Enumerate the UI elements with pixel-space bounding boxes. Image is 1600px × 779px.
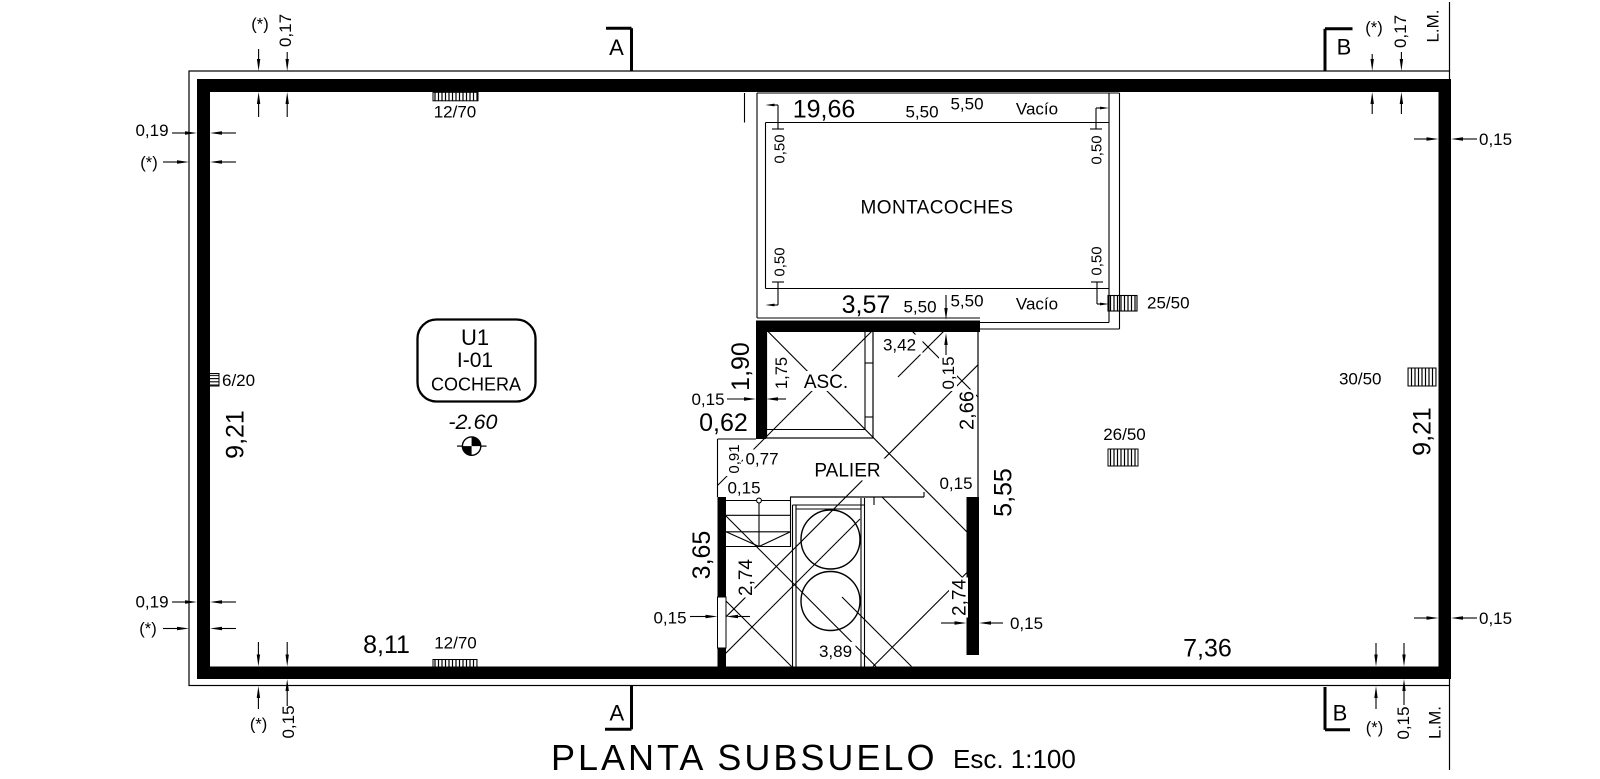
svg-text:L.M.: L.M. [1426, 706, 1445, 739]
svg-text:PALIER: PALIER [814, 460, 880, 481]
svg-text:Esc. 1:100: Esc. 1:100 [953, 744, 1076, 774]
svg-text:0,50: 0,50 [772, 247, 789, 276]
svg-text:0,15: 0,15 [1394, 706, 1413, 739]
svg-text:0,15: 0,15 [1479, 130, 1512, 149]
svg-text:I-01: I-01 [457, 349, 493, 372]
svg-text:0,15: 0,15 [939, 474, 972, 493]
svg-text:0,50: 0,50 [1089, 135, 1106, 164]
svg-text:0,15: 0,15 [691, 390, 724, 409]
svg-text:0,17: 0,17 [1391, 15, 1410, 48]
svg-text:2,66: 2,66 [956, 391, 978, 430]
svg-text:5,55: 5,55 [990, 468, 1018, 517]
svg-text:(*): (*) [140, 154, 157, 172]
svg-text:5,50: 5,50 [905, 103, 938, 122]
svg-text:8,11: 8,11 [363, 631, 410, 659]
svg-text:5,50: 5,50 [950, 95, 983, 114]
svg-text:0,17: 0,17 [276, 14, 295, 47]
svg-text:26/50: 26/50 [1103, 425, 1146, 444]
svg-text:2,74: 2,74 [736, 559, 757, 596]
svg-text:5,50: 5,50 [950, 292, 983, 311]
svg-text:9,21: 9,21 [1409, 407, 1437, 456]
svg-text:L.M.: L.M. [1424, 9, 1443, 42]
svg-text:3,57: 3,57 [842, 291, 891, 319]
svg-text:(*): (*) [250, 716, 267, 734]
svg-text:(*): (*) [1365, 19, 1382, 37]
svg-text:25/50: 25/50 [1147, 294, 1190, 313]
svg-text:0,15: 0,15 [939, 356, 958, 389]
svg-text:Vacío: Vacío [1016, 100, 1058, 119]
svg-text:COCHERA: COCHERA [431, 375, 521, 395]
svg-text:9,21: 9,21 [222, 410, 250, 459]
svg-text:3,65: 3,65 [688, 531, 716, 580]
svg-text:ASC.: ASC. [804, 372, 848, 393]
svg-text:12/70: 12/70 [434, 103, 477, 122]
svg-text:PLANTA SUBSUELO: PLANTA SUBSUELO [551, 737, 937, 778]
svg-text:0,50: 0,50 [772, 134, 789, 163]
svg-text:1,90: 1,90 [727, 342, 755, 391]
svg-text:B: B [1337, 35, 1352, 60]
svg-text:Vacío: Vacío [1016, 295, 1058, 314]
svg-text:1,75: 1,75 [773, 357, 791, 389]
svg-text:0,77: 0,77 [745, 450, 778, 469]
svg-text:0,15: 0,15 [1010, 614, 1043, 633]
svg-text:0,15: 0,15 [653, 609, 686, 628]
svg-text:0,62: 0,62 [699, 409, 748, 437]
svg-text:2,74: 2,74 [949, 579, 970, 616]
svg-text:6/20: 6/20 [222, 371, 255, 390]
svg-text:12/70: 12/70 [434, 634, 477, 653]
svg-text:0,50: 0,50 [1089, 246, 1106, 275]
svg-text:7,36: 7,36 [1183, 635, 1232, 663]
svg-text:0,19: 0,19 [135, 121, 168, 140]
svg-text:19,66: 19,66 [793, 96, 856, 124]
svg-text:0,15: 0,15 [279, 705, 298, 738]
svg-text:0,91: 0,91 [726, 444, 743, 473]
svg-text:B: B [1333, 701, 1348, 726]
svg-text:A: A [609, 700, 624, 725]
svg-text:(*): (*) [139, 620, 156, 638]
svg-text:-2.60: -2.60 [448, 410, 497, 434]
svg-text:3,89: 3,89 [819, 642, 852, 661]
svg-text:(*): (*) [251, 16, 268, 34]
svg-text:3,42: 3,42 [883, 336, 916, 355]
svg-text:(*): (*) [1366, 719, 1383, 737]
svg-text:0,15: 0,15 [1479, 609, 1512, 628]
svg-text:0,19: 0,19 [135, 593, 168, 612]
svg-text:0,15: 0,15 [727, 479, 760, 498]
svg-text:A: A [609, 35, 624, 60]
svg-text:U1: U1 [461, 325, 489, 350]
svg-text:MONTACOCHES: MONTACOCHES [861, 197, 1014, 218]
svg-text:30/50: 30/50 [1339, 370, 1382, 389]
svg-text:5,50: 5,50 [903, 298, 936, 317]
